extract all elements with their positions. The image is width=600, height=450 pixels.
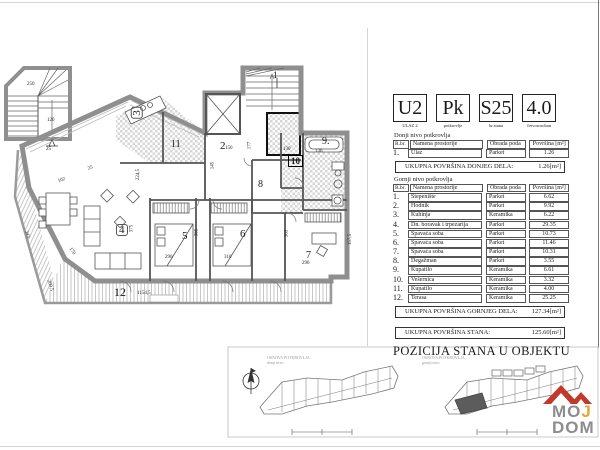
room-number-label: 6 <box>240 229 246 239</box>
table-cell: Ulaz <box>408 149 482 158</box>
table-cell: 3.32 <box>529 276 569 285</box>
table-cell: Spavaća soba <box>408 230 482 239</box>
dimension-label: 120 <box>47 118 55 123</box>
table-cell: 3. <box>393 211 408 220</box>
table-cell: 4. <box>393 221 408 230</box>
unit-code-caption: br.stana <box>479 123 513 128</box>
table-cell: Namena prostorije <box>410 184 483 193</box>
table-cell: 10.73 <box>529 230 569 239</box>
table-row: 11.KupatiloKeramika4.00 <box>393 285 569 294</box>
table-cell: 29.35 <box>529 221 569 230</box>
lower-section-title: Donji nivo potkrovlja <box>394 132 569 139</box>
unit-code-caption: četvorosoban <box>522 123 556 128</box>
table-row: 2.HodnikParket9.92 <box>393 202 569 211</box>
table-cell: Dn. boravak i trpezarija <box>408 221 482 230</box>
table-cell: Keramika <box>486 276 526 285</box>
table-cell: Spavaća soba <box>408 239 482 248</box>
table-cell: 12. <box>393 294 408 303</box>
lower-level-table: R.br.Namena prostorijeObrada podaPovršin… <box>393 140 569 158</box>
unit-header: U2ULAZ 2PkpotkrovljeS25br.stana4.0četvor… <box>393 94 569 128</box>
table-cell: Spavaća soba <box>408 248 482 257</box>
table-cell: Parket <box>486 193 526 202</box>
dimension-label: 365 <box>194 229 199 237</box>
mini-plan-upper-caption: OSNOVA POTKROVLJA gornji nivo <box>422 356 465 365</box>
table-cell: Parket <box>486 149 526 158</box>
table-row: 10.VešernicaKeramika3.32 <box>393 276 569 285</box>
table-cell: Keramika <box>486 266 526 275</box>
upper-level-table: R.br.Namena prostorijeObrada podaPovršin… <box>393 184 569 303</box>
table-cell: Parket <box>486 257 526 266</box>
table-row: 4.Dn. boravak i trpezarijaParket29.35 <box>393 221 569 230</box>
logo-line2: DOM <box>552 420 595 436</box>
position-title: POZICIJA STANA U OBJEKTU <box>393 344 569 359</box>
grand-total-value: 125.60[m²] <box>532 329 561 336</box>
room-number-label: 12 <box>114 287 126 297</box>
mini-plan-lower <box>260 366 398 435</box>
table-cell: 9. <box>393 266 408 275</box>
table-row: 12.TerasaKeramika25.25 <box>393 294 569 303</box>
mini-plan-lower-caption: OSNOVA POTKROVLJA donji nivo <box>267 356 310 365</box>
table-cell: Površina [m²] <box>529 184 569 193</box>
grand-total-label: UKUPNA POVRŠINA STANA: <box>405 329 490 336</box>
table-cell: Vešernica <box>408 276 482 285</box>
table-row: 5.Spavaća sobaParket10.73 <box>393 230 569 239</box>
unit-code-block: S25br.stana <box>479 94 513 128</box>
table-cell: Parket <box>486 202 526 211</box>
info-panel: U2ULAZ 2PkpotkrovljeS25br.stana4.0četvor… <box>393 94 569 359</box>
table-cell: 3.55 <box>529 257 569 266</box>
table-cell: Keramika <box>486 285 526 294</box>
table-cell: Hodnik <box>408 202 482 211</box>
table-cell: 1.26 <box>529 149 569 158</box>
unit-code: U2 <box>393 94 427 122</box>
unit-code-block: U2ULAZ 2 <box>393 94 427 128</box>
room-number-label: 10 <box>288 155 303 167</box>
table-cell: 10. <box>393 276 408 285</box>
table-cell: Terasa <box>408 294 482 303</box>
table-cell: 6.62 <box>529 193 569 202</box>
table-header-row: R.br.Namena prostorijeObrada podaPovršin… <box>393 184 569 193</box>
upper-total-label: UKUPNA POVRŠINA GORNJEG DELA: <box>405 308 518 315</box>
lower-total-label: UKUPNA POVRŠINA DONJEG DELA: <box>405 163 513 170</box>
table-cell: Parket <box>486 221 526 230</box>
table-cell: Površina [m²] <box>529 140 569 149</box>
unit-code-block: Pkpotkrovlje <box>436 94 470 128</box>
table-cell: 6.61 <box>529 266 569 275</box>
upper-section-title: Gornji nivo potkrovlja <box>394 176 569 183</box>
table-row: 9.KupatiloKeramika6.61 <box>393 266 569 275</box>
lower-stair-block <box>6 68 70 146</box>
dimension-label: 363 <box>284 230 289 238</box>
unit-code: S25 <box>479 94 513 122</box>
dimension-label: 150 <box>225 146 233 151</box>
room-number-label: 4 <box>116 224 128 236</box>
table-cell: Kuhinja <box>408 211 482 220</box>
table-cell: Keramika <box>486 294 526 303</box>
table-cell: Parket <box>486 239 526 248</box>
table-cell: Namena prostorije <box>410 140 483 149</box>
table-cell: 25.25 <box>529 294 569 303</box>
dimension-label: 136 <box>315 149 323 154</box>
upper-total: UKUPNA POVRŠINA GORNJEG DELA: 127.34[m²] <box>395 306 565 318</box>
table-cell: Degažman <box>408 257 482 266</box>
table-cell: 1. <box>393 149 408 158</box>
dimension-label: 290 <box>165 255 173 260</box>
table-cell: 6.22 <box>529 211 569 220</box>
table-cell: Stepenište <box>408 193 482 202</box>
room-number-label: 7 <box>306 251 311 261</box>
dimension-label: 177 <box>247 142 252 150</box>
table-cell: 4.00 <box>529 285 569 294</box>
upper-total-value: 127.34[m²] <box>532 308 561 315</box>
table-cell: Kupatilo <box>408 285 482 294</box>
lower-total-value: 1.26[m²] <box>538 163 561 170</box>
logo-text: MOJ DOM <box>552 404 595 436</box>
room-number-label: 11 <box>171 140 181 150</box>
table-cell: Kupatilo <box>408 266 482 275</box>
dimension-label: 224,5 <box>136 169 141 180</box>
table-cell: Obrada poda <box>487 140 527 149</box>
table-row: 6.Spavaća sobaParket11.46 <box>393 239 569 248</box>
dimension-label: 25 <box>46 147 51 152</box>
unit-code-caption: ULAZ 2 <box>393 123 427 128</box>
table-cell: Parket <box>486 230 526 239</box>
room-number-label: 5 <box>182 231 188 241</box>
unit-code: Pk <box>436 94 470 122</box>
table-cell: 9.92 <box>529 202 569 211</box>
table-cell: 11.46 <box>529 239 569 248</box>
table-cell: 10.31 <box>529 248 569 257</box>
unit-code-block: 4.0četvorosoban <box>522 94 556 128</box>
dimension-label: 130 <box>283 147 291 152</box>
floor-plan-sheet: 123456789.1011122501202510225224,5375365… <box>0 0 600 450</box>
room-number-label: 3 <box>131 107 143 119</box>
room-number-label: 8 <box>258 180 263 190</box>
north-compass <box>243 368 259 394</box>
table-row: 1.StepeništeParket6.62 <box>393 193 569 202</box>
lower-total: UKUPNA POVRŠINA DONJEG DELA: 1.26[m²] <box>395 161 565 173</box>
table-row: 7.Spavaća sobaParket10.31 <box>393 248 569 257</box>
grand-total: UKUPNA POVRŠINA STANA: 125.60[m²] <box>395 327 565 339</box>
table-row: 3.KuhinjaKeramika6.22 <box>393 211 569 220</box>
table-row: 8.DegažmanParket3.55 <box>393 257 569 266</box>
dimension-label: 290 <box>302 261 310 266</box>
room-number-label: 1 <box>273 70 278 80</box>
unit-code-caption: potkrovlje <box>436 123 470 128</box>
table-row: 1.UlazParket1.26 <box>393 149 569 158</box>
dimension-label: 157,5 <box>348 234 353 245</box>
table-cell: Keramika <box>486 211 526 220</box>
dimension-label: 375 <box>129 225 134 233</box>
table-cell: Parket <box>486 248 526 257</box>
unit-code: 4.0 <box>522 94 556 122</box>
dimension-label: 1154,5 <box>137 291 151 296</box>
table-header-row: R.br.Namena prostorijeObrada podaPovršin… <box>393 140 569 149</box>
dimension-label: 250 <box>27 82 35 87</box>
table-cell: Obrada poda <box>487 184 527 193</box>
room-number-label: 9. <box>322 137 330 147</box>
dimension-label: 310 <box>224 255 232 260</box>
dimension-label: 145 <box>210 162 215 170</box>
